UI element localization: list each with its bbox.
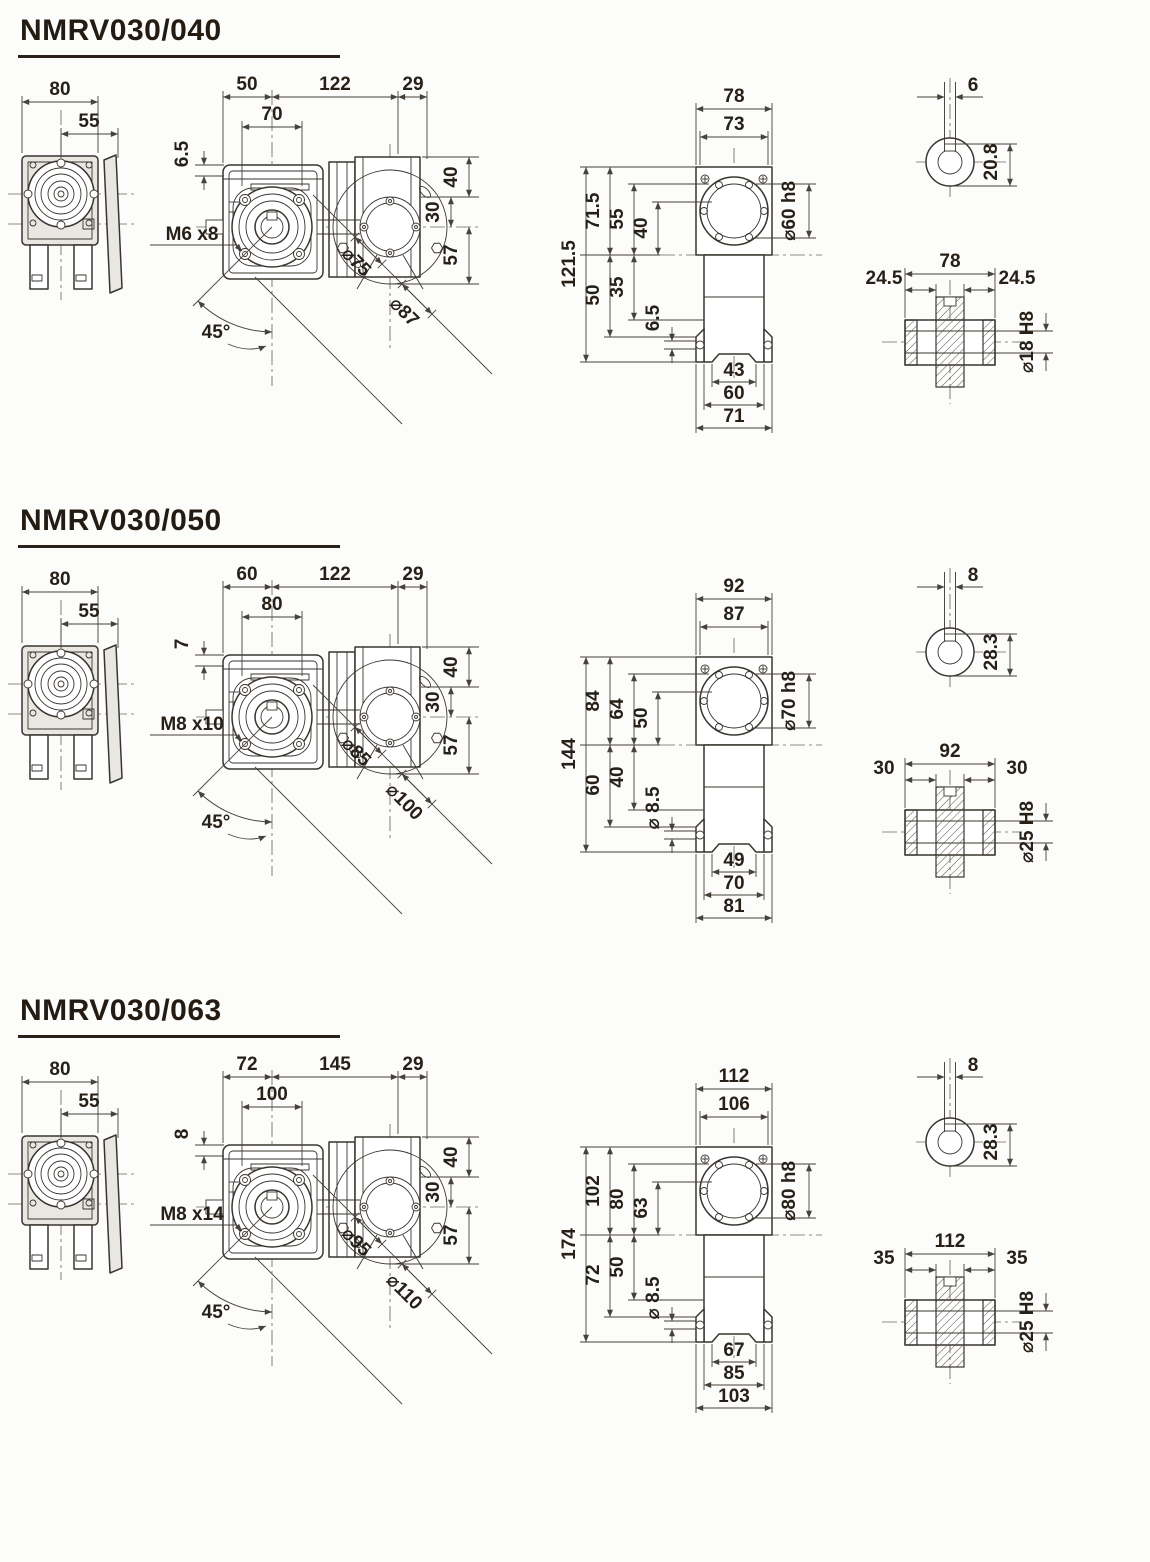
side-view-part <box>8 110 134 300</box>
dim-front-right-top: 29 <box>402 564 423 585</box>
model-section: NMRV030/063 <box>0 984 1150 1472</box>
section-title: NMRV030/040 <box>18 14 340 58</box>
input-shaft-section-view: 8 28.3 <box>916 1055 1017 1178</box>
dim-front-v-mid: 30 <box>423 691 444 712</box>
dim-front-v-bot: 57 <box>441 1224 462 1245</box>
dim-front-mid-top: 122 <box>319 564 351 585</box>
front-view-part <box>196 1070 482 1366</box>
dim-front-offset: 8 <box>172 1129 193 1140</box>
dim-elev-top-outer: 112 <box>719 1066 750 1087</box>
elevation-dimensions: 78 73 ⌀60 h8 121 <box>559 86 816 433</box>
dim-elev-h3-bot: 35 <box>607 276 628 298</box>
angle-label: 45° <box>202 812 231 833</box>
dim-front-v-bot: 57 <box>441 734 462 755</box>
thread-size-label: M8 x10 <box>160 714 223 735</box>
angle-label: 45° <box>202 322 231 343</box>
dim-hollow-left: 30 <box>873 758 894 779</box>
dim-elev-h2-bot: 60 <box>583 774 604 795</box>
dim-front-mid-top: 122 <box>319 74 351 95</box>
dim-hollow-total: 78 <box>939 251 960 272</box>
dim-elev-bot-outer: 71 <box>723 406 745 427</box>
catalog-sheet: NMRV030/040 <box>0 0 1150 1472</box>
dim-front-right-top: 29 <box>402 1054 423 1075</box>
dim-elev-bot-mid: 60 <box>723 383 744 404</box>
side-view-dimensions: 80 55 <box>22 79 118 158</box>
dim-front-left-top: 60 <box>236 564 257 585</box>
technical-drawing: 80 55 <box>0 1032 1150 1472</box>
input-shaft-section-view: 8 28.3 <box>916 565 1017 688</box>
hollow-shaft-part <box>882 1260 1022 1384</box>
output-elevation-view: 112 106 ⌀80 h8 1 <box>559 1066 822 1413</box>
dim-front-right-top: 29 <box>402 74 423 95</box>
dim-side-inner-width: 55 <box>78 111 100 132</box>
dim-front-left-top: 50 <box>236 74 257 95</box>
dim-elev-h3-top: 55 <box>607 208 628 230</box>
dim-elev-bot-mid: 85 <box>723 1363 745 1384</box>
input-shaft-section-view: 6 20.8 <box>916 75 1017 198</box>
dim-front-offset: 6.5 <box>172 140 193 167</box>
dim-front-v-top: 40 <box>441 166 462 187</box>
technical-drawing: 80 55 <box>0 542 1150 982</box>
dim-elev-h2-bot: 50 <box>583 284 604 305</box>
model-section: NMRV030/040 <box>0 4 1150 492</box>
hollow-shaft-section-view: 92 30 30 ⌀25 H8 <box>873 741 1053 894</box>
dim-front-v-bot: 57 <box>441 244 462 265</box>
dim-hollow-bore: ⌀25 H8 <box>1017 1291 1038 1353</box>
dim-key-width: 8 <box>968 565 979 586</box>
section-title: NMRV030/063 <box>18 994 340 1038</box>
dim-elev-h3-top: 80 <box>607 1188 628 1209</box>
dim-key-height: 28.3 <box>981 1124 1002 1161</box>
dim-elev-h2-top: 71.5 <box>583 192 604 229</box>
dim-side-inner-width: 55 <box>78 1091 100 1112</box>
side-view-part <box>8 1090 134 1280</box>
dim-hollow-bore: ⌀18 H8 <box>1017 311 1038 373</box>
front-view: 72 145 29 100 8 M8 x14 <box>150 1054 492 1404</box>
thread-size-label: M6 x8 <box>166 224 219 245</box>
dim-hollow-total: 112 <box>935 1231 966 1252</box>
model-section: NMRV030/050 <box>0 494 1150 982</box>
thread-size-label: M8 x14 <box>160 1204 224 1225</box>
dim-elev-h3-bot: 50 <box>607 1256 628 1277</box>
dim-elev-top-inner: 87 <box>723 604 744 625</box>
dim-foot-hole: ⌀ 8.5 <box>643 1276 664 1320</box>
hollow-shaft-section-view: 112 35 35 ⌀25 H8 <box>873 1231 1053 1384</box>
dim-hollow-bore: ⌀25 H8 <box>1017 801 1038 863</box>
dim-elev-total-height: 144 <box>559 738 580 770</box>
side-view: 80 55 <box>8 1059 134 1280</box>
dim-elev-total-height: 174 <box>559 1228 580 1260</box>
dim-elev-bot-inner: 49 <box>723 850 744 871</box>
dim-side-overall-width: 80 <box>49 1059 70 1080</box>
hollow-shaft-part <box>882 280 1022 404</box>
front-view: 50 122 29 70 6.5 M6 x8 <box>150 74 492 424</box>
hollow-shaft-part <box>882 770 1022 894</box>
front-view-part <box>196 580 482 876</box>
side-view-part <box>8 600 134 790</box>
dim-bolt-circle-outer: ⌀100 <box>381 779 426 824</box>
dim-hollow-total: 92 <box>939 741 960 762</box>
dim-key-height: 28.3 <box>981 634 1002 671</box>
side-view-dimensions: 80 55 <box>22 1059 118 1138</box>
angle-label: 45° <box>202 1302 231 1323</box>
dim-elev-bot-outer: 103 <box>718 1386 750 1407</box>
dim-elev-top-outer: 78 <box>723 86 744 107</box>
dim-front-left-top: 72 <box>236 1054 257 1075</box>
dim-elev-top-inner: 106 <box>718 1094 750 1115</box>
dim-key-height: 20.8 <box>981 144 1002 181</box>
dim-elev-h4-top: 63 <box>631 1197 652 1218</box>
dim-elev-bot-mid: 70 <box>723 873 744 894</box>
dim-elev-total-height: 121.5 <box>559 240 580 288</box>
dim-front-inner-width: 70 <box>261 104 282 125</box>
technical-drawing: 80 55 <box>0 52 1150 492</box>
dim-elev-bot-inner: 43 <box>723 360 744 381</box>
dim-front-offset: 7 <box>172 639 193 650</box>
dim-hollow-right: 24.5 <box>999 268 1036 289</box>
dim-elev-top-outer: 92 <box>723 576 744 597</box>
dim-side-overall-width: 80 <box>49 569 70 590</box>
dim-elev-h3-top: 64 <box>607 698 628 720</box>
dim-output-bore: ⌀70 h8 <box>779 671 800 731</box>
dim-bolt-circle-outer: ⌀110 <box>382 1270 427 1315</box>
dim-hollow-right: 30 <box>1006 758 1027 779</box>
dim-side-overall-width: 80 <box>49 79 70 100</box>
dim-hollow-left: 35 <box>873 1248 895 1269</box>
dim-front-inner-width: 100 <box>256 1084 288 1105</box>
dim-side-inner-width: 55 <box>78 601 100 622</box>
side-view: 80 55 <box>8 79 134 300</box>
dim-hollow-right: 35 <box>1006 1248 1028 1269</box>
dim-elev-h4-top: 40 <box>631 217 652 238</box>
dim-front-v-mid: 30 <box>423 201 444 222</box>
dim-output-bore: ⌀80 h8 <box>779 1161 800 1221</box>
dim-elev-bot-inner: 67 <box>723 1340 744 1361</box>
dim-elev-h2-bot: 72 <box>583 1264 604 1285</box>
dim-key-width: 8 <box>968 1055 979 1076</box>
dim-foot-hole: ⌀ 8.5 <box>643 786 664 830</box>
elevation-dimensions: 92 87 ⌀70 h8 144 <box>559 576 816 923</box>
dim-front-v-top: 40 <box>441 656 462 677</box>
front-view-part <box>196 90 482 386</box>
front-view: 60 122 29 80 7 M8 x10 <box>150 564 492 914</box>
hollow-shaft-section-view: 78 24.5 24.5 ⌀18 H8 <box>866 251 1053 404</box>
output-elevation-view: 78 73 ⌀60 h8 121 <box>559 86 822 433</box>
dim-front-v-top: 40 <box>441 1146 462 1167</box>
dim-elev-h4-top: 50 <box>631 707 652 728</box>
dim-hollow-left: 24.5 <box>866 268 903 289</box>
side-view-dimensions: 80 55 <box>22 569 118 648</box>
output-elevation-view: 92 87 ⌀70 h8 144 <box>559 576 822 923</box>
dim-front-v-mid: 30 <box>423 1181 444 1202</box>
side-view: 80 55 <box>8 569 134 790</box>
dim-elev-h2-top: 84 <box>583 690 604 712</box>
dim-key-width: 6 <box>968 75 979 96</box>
section-title: NMRV030/050 <box>18 504 340 548</box>
dim-elev-h3-bot: 40 <box>607 766 628 787</box>
dim-elev-top-inner: 73 <box>723 114 744 135</box>
dim-foot-hole: 6.5 <box>643 304 664 331</box>
elevation-dimensions: 112 106 ⌀80 h8 1 <box>559 1066 816 1413</box>
dim-elev-bot-outer: 81 <box>723 896 745 917</box>
dim-front-inner-width: 80 <box>261 594 282 615</box>
dim-elev-h2-top: 102 <box>583 1175 604 1207</box>
dim-front-mid-top: 145 <box>319 1054 351 1075</box>
dim-output-bore: ⌀60 h8 <box>779 181 800 241</box>
